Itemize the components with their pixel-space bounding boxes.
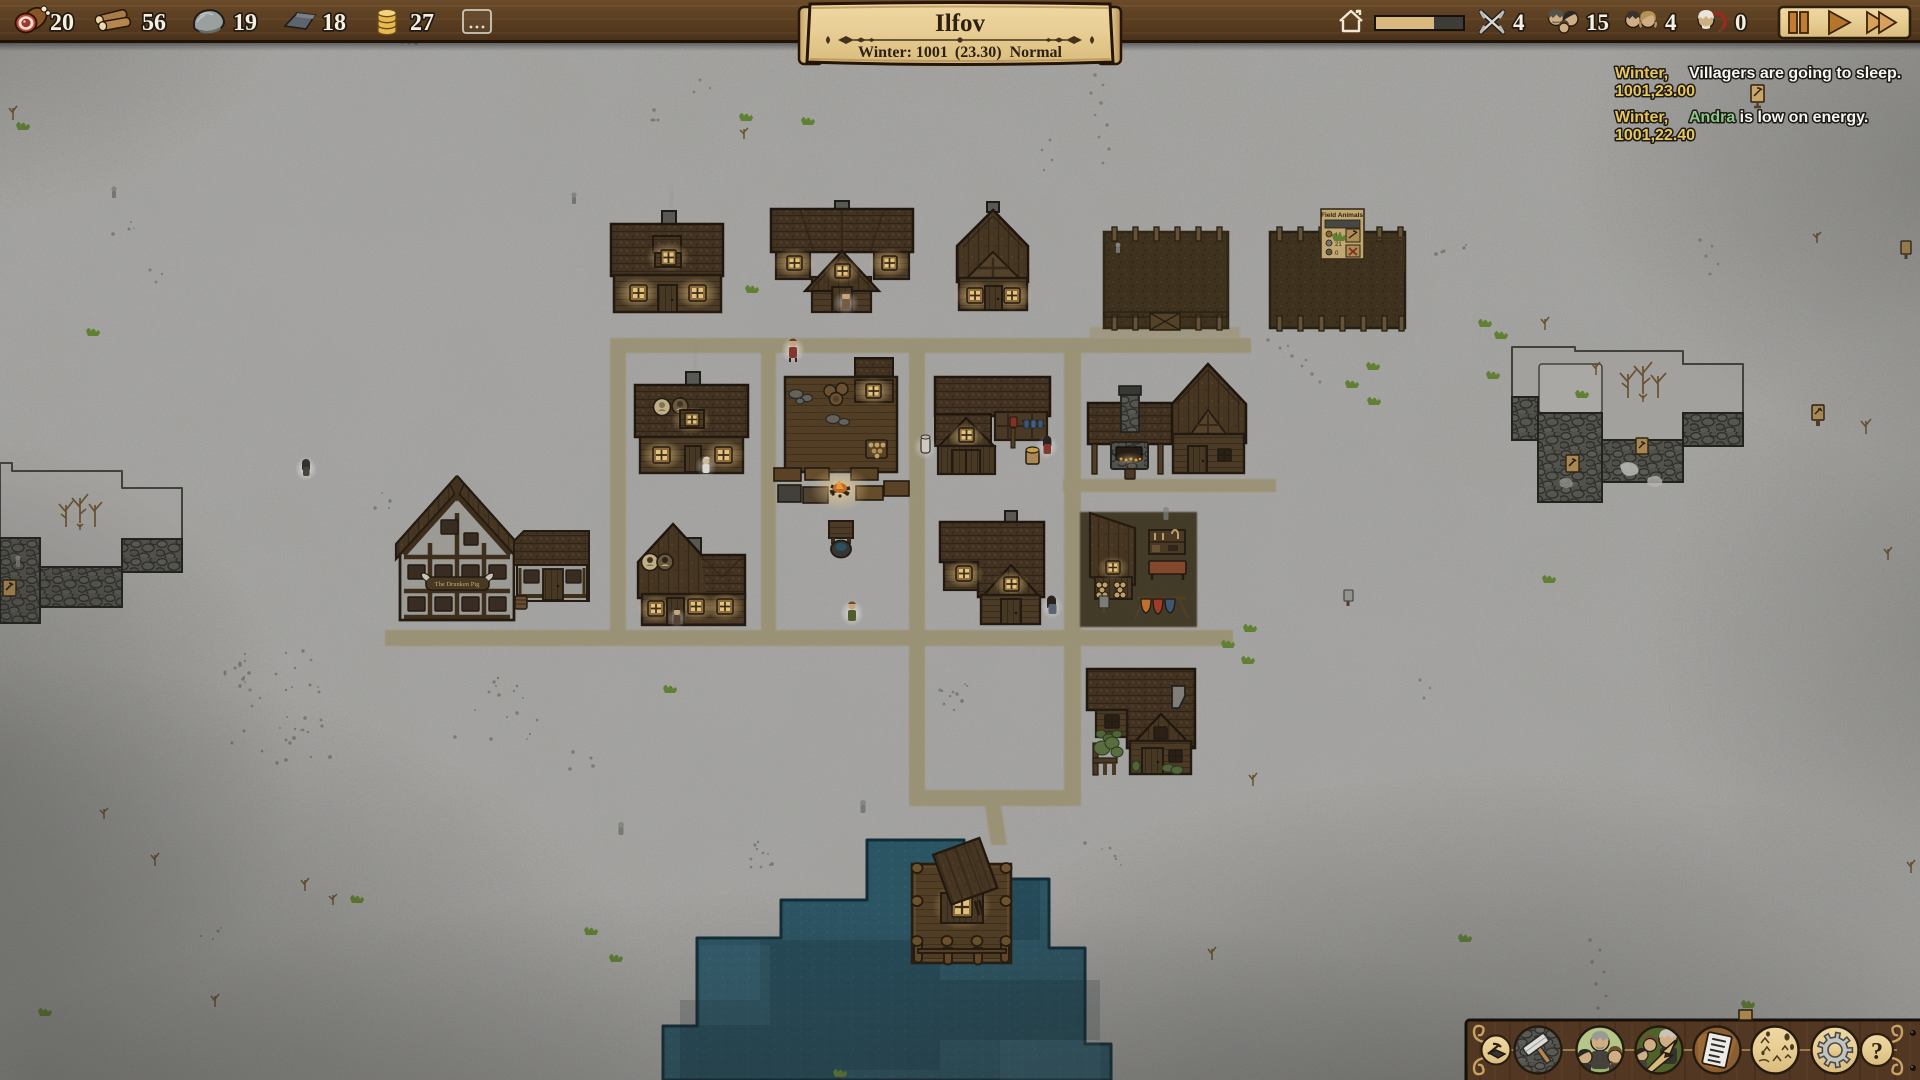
svg-text:56: 56: [142, 10, 166, 36]
svg-text:4: 4: [1665, 10, 1677, 35]
svg-text:Ilfov: Ilfov: [935, 10, 986, 37]
svg-text:1001,23.00: 1001,23.00: [1615, 83, 1695, 100]
svg-text:19: 19: [233, 10, 257, 36]
svg-text:Andra is low on energy.: Andra is low on energy.: [1689, 109, 1868, 126]
svg-text:Winter: 1001(23.30)Normal: Winter: 1001(23.30)Normal: [858, 44, 1063, 61]
svg-text:18: 18: [322, 10, 346, 36]
svg-text:Winter,: Winter,: [1615, 109, 1668, 126]
svg-text:?: ?: [1871, 1039, 1883, 1065]
svg-text:27: 27: [410, 10, 434, 36]
svg-text:0: 0: [1735, 10, 1747, 35]
svg-text:20: 20: [50, 10, 74, 36]
svg-text:15: 15: [1586, 10, 1609, 35]
svg-text:Winter,: Winter,: [1615, 65, 1668, 82]
svg-text:Villagers are going to sleep.: Villagers are going to sleep.: [1689, 65, 1901, 82]
svg-text:1001,22.40: 1001,22.40: [1615, 127, 1695, 144]
svg-text:4: 4: [1513, 10, 1525, 35]
